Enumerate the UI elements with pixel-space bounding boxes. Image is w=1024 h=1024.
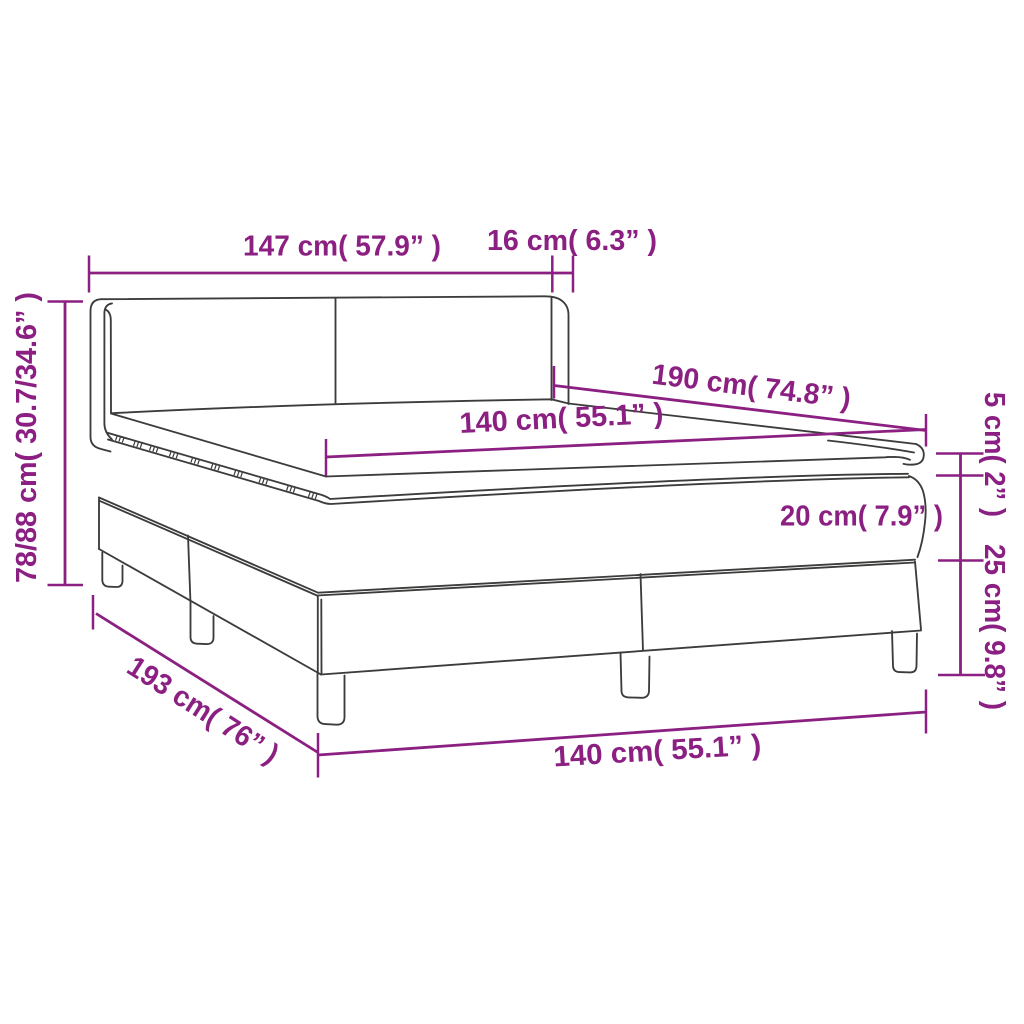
svg-text:5 cm( 2” ): 5 cm( 2” )	[978, 392, 1010, 517]
svg-text:16 cm( 6.3” ): 16 cm( 6.3” )	[487, 225, 657, 257]
svg-text:25 cm( 9.8” ): 25 cm( 9.8” )	[978, 544, 1010, 710]
svg-text:78/88 cm( 30.7/34.6” ): 78/88 cm( 30.7/34.6” )	[11, 292, 43, 583]
svg-text:147 cm( 57.9” ): 147 cm( 57.9” )	[243, 231, 441, 263]
svg-text:20 cm( 7.9” ): 20 cm( 7.9” )	[780, 501, 943, 533]
